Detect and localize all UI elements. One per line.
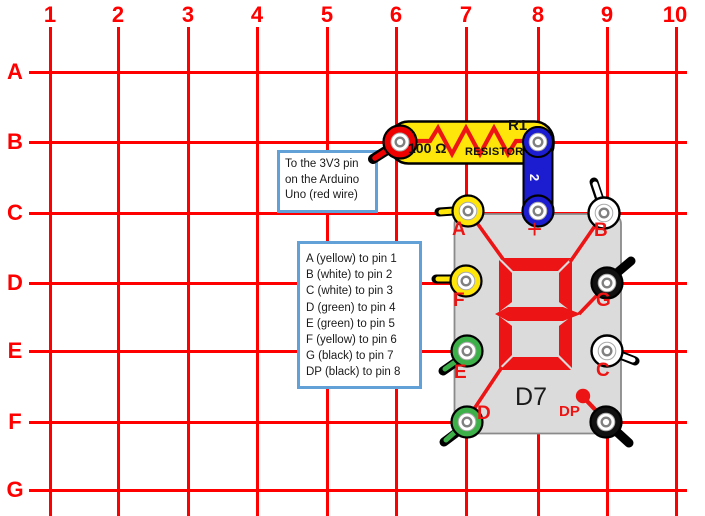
- circuit-diagram: 1 2 3 4 5 6 7 8 9 10 A B C D E F G To th…: [0, 0, 705, 516]
- pin-dp[interactable]: [591, 407, 622, 438]
- pin-label-b: B: [594, 220, 608, 242]
- pin-label-plus: +: [527, 214, 542, 245]
- pin-label-g: G: [596, 290, 611, 312]
- pin-label-a: A: [452, 219, 466, 241]
- display-designator: D7: [505, 383, 557, 412]
- pin-label-e: E: [454, 362, 467, 384]
- wire-2-top-snap: [523, 127, 553, 157]
- pin-label-d: D: [477, 403, 491, 425]
- components-layer: [0, 0, 705, 516]
- segment-middle: [495, 307, 581, 321]
- pin-label-f: F: [453, 290, 465, 312]
- wire-2-label: 2: [527, 174, 542, 181]
- pin-label-c: C: [596, 360, 610, 382]
- pin-label-dp: DP: [559, 403, 580, 420]
- dp-dot: [576, 389, 590, 403]
- resistor-type-label: RESISTOR: [465, 146, 523, 158]
- resistor-designator: R1: [508, 117, 527, 134]
- resistor-value: 100 Ω: [408, 140, 446, 156]
